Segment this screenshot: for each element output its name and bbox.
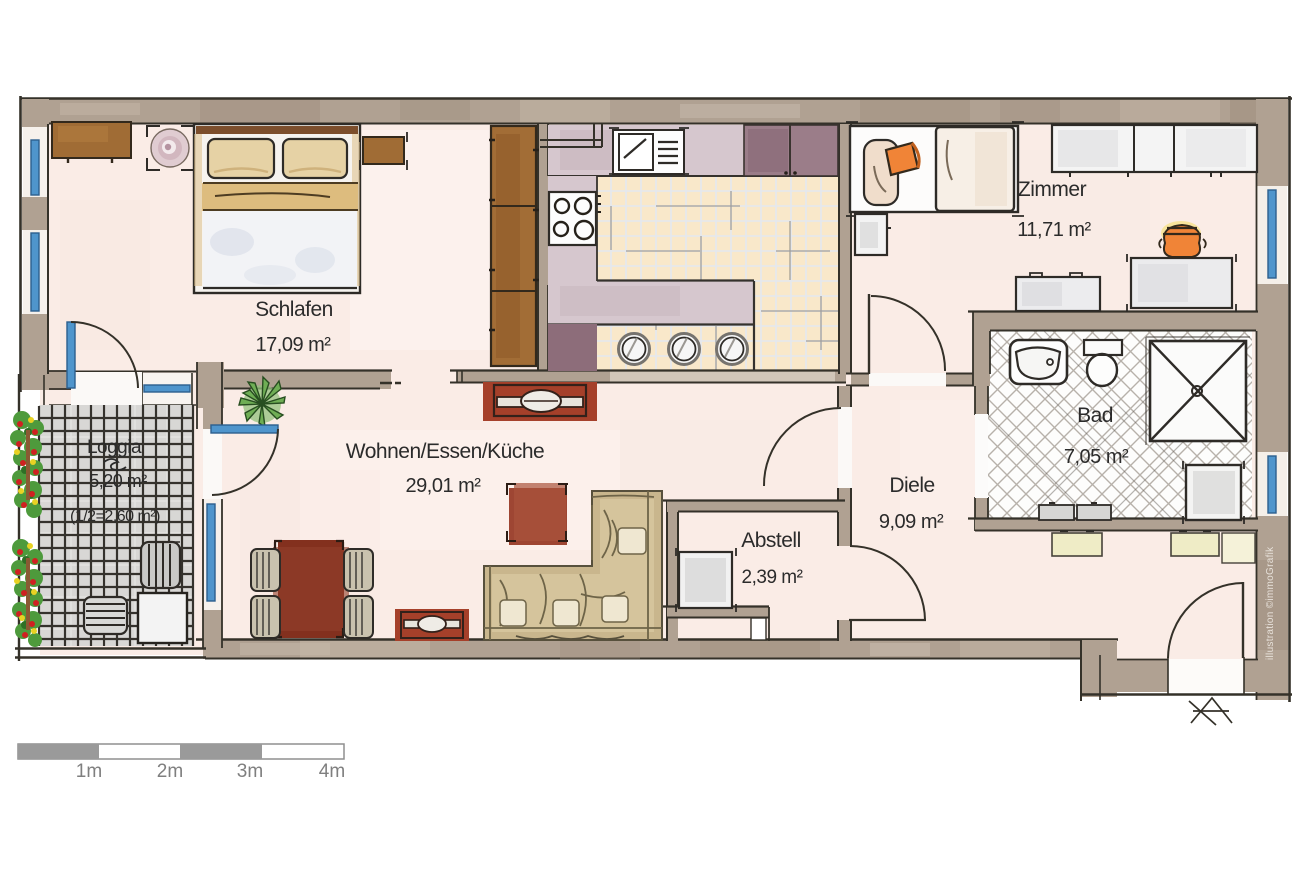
svg-text:2,39 m²: 2,39 m² <box>742 567 803 588</box>
svg-text:9,09 m²: 9,09 m² <box>879 511 944 533</box>
svg-text:Bad: Bad <box>1077 404 1113 427</box>
svg-text:29,01 m²: 29,01 m² <box>406 475 482 497</box>
svg-text:(1/2=2,60 m²): (1/2=2,60 m²) <box>70 508 160 525</box>
svg-text:5,20 m²: 5,20 m² <box>89 471 147 491</box>
svg-text:7,05 m²: 7,05 m² <box>1064 446 1129 468</box>
svg-text:Schlafen: Schlafen <box>255 298 333 321</box>
svg-text:1m: 1m <box>76 761 102 782</box>
svg-text:Zimmer: Zimmer <box>1018 178 1087 201</box>
svg-text:4m: 4m <box>319 761 345 782</box>
svg-text:Diele: Diele <box>889 474 934 497</box>
svg-text:Wohnen/Essen/Küche: Wohnen/Essen/Küche <box>346 440 544 463</box>
svg-text:Loggia: Loggia <box>87 437 142 458</box>
svg-text:17,09 m²: 17,09 m² <box>256 334 332 356</box>
svg-text:2m: 2m <box>157 761 183 782</box>
svg-text:3m: 3m <box>237 761 263 782</box>
svg-text:11,71 m²: 11,71 m² <box>1017 219 1091 241</box>
svg-text:illustration ©immoGrafik: illustration ©immoGrafik <box>1265 546 1276 660</box>
svg-text:Abstell: Abstell <box>741 529 801 552</box>
